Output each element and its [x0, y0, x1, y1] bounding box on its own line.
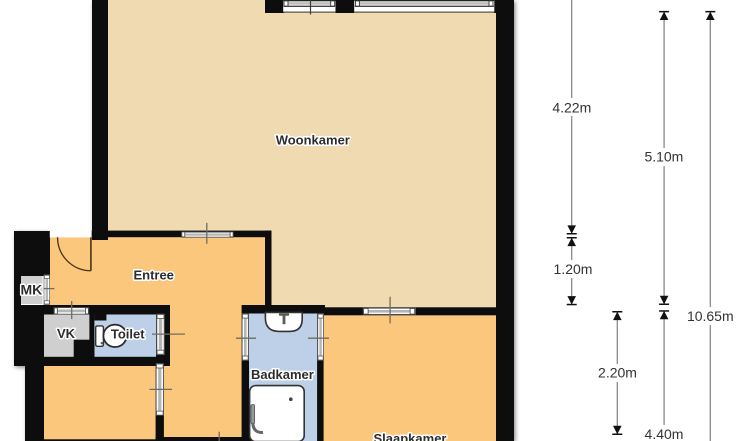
svg-text:10.65m: 10.65m: [687, 308, 734, 324]
svg-text:1.20m: 1.20m: [554, 261, 593, 277]
svg-text:Toilet: Toilet: [111, 327, 145, 342]
svg-text:VK: VK: [57, 326, 76, 341]
svg-text:Woonkamer: Woonkamer: [276, 132, 350, 147]
svg-text:4.22m: 4.22m: [552, 99, 591, 115]
svg-text:2.20m: 2.20m: [598, 365, 637, 381]
svg-text:5.10m: 5.10m: [644, 148, 683, 164]
svg-text:Slaapkamer: Slaapkamer: [374, 431, 447, 441]
svg-text:4.40m: 4.40m: [645, 426, 684, 441]
svg-text:Entree: Entree: [133, 268, 173, 283]
svg-text:Badkamer: Badkamer: [251, 367, 314, 382]
svg-text:MK: MK: [21, 282, 43, 298]
